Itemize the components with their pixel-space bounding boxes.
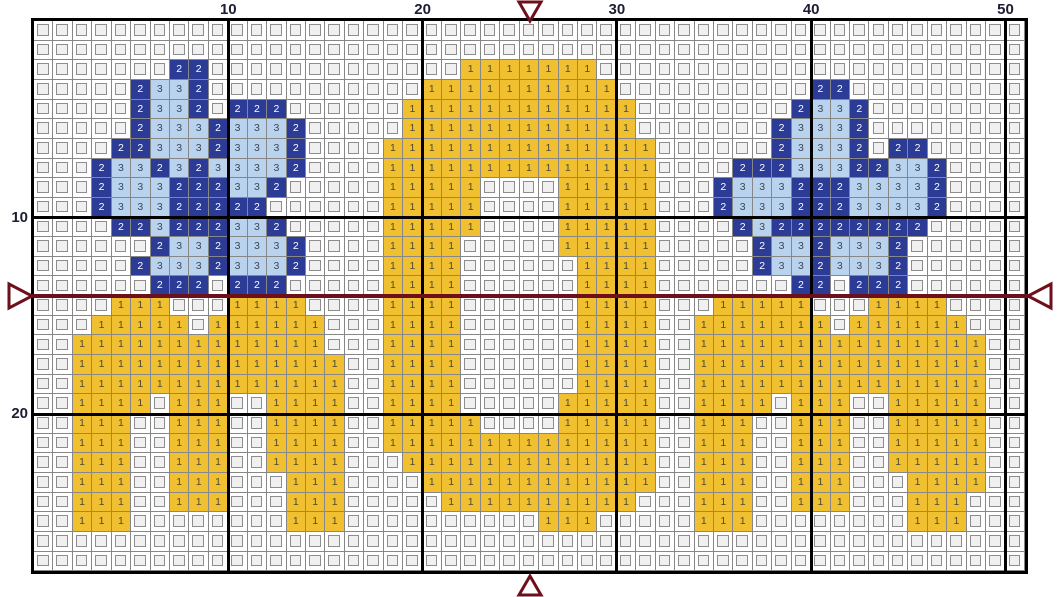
- grid-cell[interactable]: 1: [306, 453, 325, 473]
- grid-cell[interactable]: [986, 335, 1005, 355]
- grid-cell[interactable]: 1: [442, 80, 461, 100]
- grid-cell[interactable]: [403, 532, 422, 552]
- grid-cell[interactable]: [53, 198, 72, 218]
- grid-cell[interactable]: [500, 335, 519, 355]
- grid-cell[interactable]: 1: [481, 434, 500, 454]
- grid-cell[interactable]: [73, 60, 92, 80]
- grid-cell[interactable]: [34, 159, 53, 179]
- grid-cell[interactable]: [73, 532, 92, 552]
- grid-cell[interactable]: [539, 414, 558, 434]
- grid-cell[interactable]: [889, 512, 908, 532]
- grid-cell[interactable]: [986, 60, 1005, 80]
- grid-cell[interactable]: 1: [967, 453, 986, 473]
- grid-cell[interactable]: 1: [889, 375, 908, 395]
- grid-cell[interactable]: 3: [831, 237, 850, 257]
- grid-cell[interactable]: [928, 139, 947, 159]
- grid-cell[interactable]: [811, 552, 830, 572]
- grid-cell[interactable]: 1: [559, 80, 578, 100]
- grid-cell[interactable]: 3: [131, 159, 150, 179]
- grid-cell[interactable]: 1: [189, 493, 208, 513]
- grid-cell[interactable]: 2: [869, 218, 888, 238]
- grid-cell[interactable]: 2: [287, 139, 306, 159]
- grid-cell[interactable]: [850, 532, 869, 552]
- grid-cell[interactable]: 3: [151, 80, 170, 100]
- grid-cell[interactable]: [364, 198, 383, 218]
- grid-cell[interactable]: [928, 552, 947, 572]
- grid-cell[interactable]: 1: [112, 355, 131, 375]
- grid-cell[interactable]: [189, 512, 208, 532]
- grid-cell[interactable]: [539, 198, 558, 218]
- grid-cell[interactable]: 1: [695, 394, 714, 414]
- grid-cell[interactable]: [131, 532, 150, 552]
- grid-cell[interactable]: 2: [131, 100, 150, 120]
- grid-cell[interactable]: 1: [423, 316, 442, 336]
- grid-cell[interactable]: [539, 532, 558, 552]
- grid-cell[interactable]: [364, 41, 383, 61]
- grid-cell[interactable]: 1: [73, 335, 92, 355]
- grid-cell[interactable]: 2: [733, 218, 752, 238]
- grid-cell[interactable]: 3: [228, 159, 247, 179]
- grid-cell[interactable]: [267, 80, 286, 100]
- grid-cell[interactable]: [92, 218, 111, 238]
- grid-cell[interactable]: [306, 552, 325, 572]
- grid-cell[interactable]: 3: [228, 139, 247, 159]
- grid-cell[interactable]: [1006, 335, 1025, 355]
- grid-cell[interactable]: 2: [209, 218, 228, 238]
- grid-cell[interactable]: [772, 552, 791, 572]
- grid-cell[interactable]: [306, 21, 325, 41]
- grid-cell[interactable]: 2: [131, 139, 150, 159]
- grid-cell[interactable]: 1: [539, 119, 558, 139]
- grid-cell[interactable]: 1: [772, 375, 791, 395]
- grid-cell[interactable]: 3: [170, 119, 189, 139]
- grid-cell[interactable]: 1: [481, 119, 500, 139]
- grid-cell[interactable]: 1: [461, 414, 480, 434]
- grid-cell[interactable]: 2: [792, 100, 811, 120]
- grid-cell[interactable]: [1006, 532, 1025, 552]
- grid-cell[interactable]: 1: [520, 100, 539, 120]
- grid-cell[interactable]: 1: [423, 434, 442, 454]
- grid-cell[interactable]: 1: [384, 257, 403, 277]
- grid-cell[interactable]: [34, 218, 53, 238]
- grid-cell[interactable]: [500, 198, 519, 218]
- grid-cell[interactable]: [306, 139, 325, 159]
- grid-cell[interactable]: [442, 21, 461, 41]
- grid-cell[interactable]: 2: [908, 139, 927, 159]
- grid-cell[interactable]: 3: [831, 139, 850, 159]
- grid-cell[interactable]: [364, 532, 383, 552]
- grid-cell[interactable]: [228, 512, 247, 532]
- grid-cell[interactable]: [520, 316, 539, 336]
- grid-cell[interactable]: 1: [131, 316, 150, 336]
- grid-cell[interactable]: 1: [384, 375, 403, 395]
- grid-cell[interactable]: [384, 453, 403, 473]
- grid-cell[interactable]: 1: [928, 434, 947, 454]
- grid-cell[interactable]: 3: [151, 178, 170, 198]
- grid-cell[interactable]: [947, 80, 966, 100]
- grid-cell[interactable]: [384, 512, 403, 532]
- grid-cell[interactable]: [53, 375, 72, 395]
- grid-cell[interactable]: [151, 21, 170, 41]
- grid-cell[interactable]: 1: [442, 493, 461, 513]
- grid-cell[interactable]: 1: [772, 316, 791, 336]
- grid-cell[interactable]: 1: [442, 473, 461, 493]
- grid-cell[interactable]: 1: [733, 296, 752, 316]
- grid-cell[interactable]: [34, 296, 53, 316]
- grid-cell[interactable]: 1: [442, 119, 461, 139]
- grid-cell[interactable]: [889, 552, 908, 572]
- grid-cell[interactable]: [209, 41, 228, 61]
- grid-cell[interactable]: 1: [112, 394, 131, 414]
- grid-cell[interactable]: 1: [811, 414, 830, 434]
- grid-cell[interactable]: [248, 532, 267, 552]
- grid-cell[interactable]: [92, 276, 111, 296]
- grid-cell[interactable]: 1: [967, 355, 986, 375]
- grid-cell[interactable]: 1: [403, 414, 422, 434]
- grid-cell[interactable]: 1: [248, 335, 267, 355]
- grid-cell[interactable]: 2: [850, 218, 869, 238]
- grid-cell[interactable]: 1: [714, 493, 733, 513]
- grid-cell[interactable]: 1: [811, 453, 830, 473]
- grid-cell[interactable]: 1: [131, 394, 150, 414]
- grid-cell[interactable]: 2: [209, 139, 228, 159]
- grid-cell[interactable]: [1006, 178, 1025, 198]
- grid-cell[interactable]: 1: [908, 335, 927, 355]
- grid-cell[interactable]: 1: [92, 493, 111, 513]
- grid-cell[interactable]: 1: [578, 414, 597, 434]
- grid-cell[interactable]: 1: [306, 493, 325, 513]
- grid-cell[interactable]: [461, 355, 480, 375]
- grid-cell[interactable]: [656, 414, 675, 434]
- grid-cell[interactable]: 1: [403, 394, 422, 414]
- grid-cell[interactable]: [442, 60, 461, 80]
- grid-cell[interactable]: [928, 237, 947, 257]
- grid-cell[interactable]: [831, 512, 850, 532]
- grid-cell[interactable]: [539, 375, 558, 395]
- grid-cell[interactable]: [53, 512, 72, 532]
- grid-cell[interactable]: 1: [189, 414, 208, 434]
- grid-cell[interactable]: [675, 178, 694, 198]
- grid-cell[interactable]: 1: [131, 296, 150, 316]
- grid-cell[interactable]: [811, 512, 830, 532]
- grid-cell[interactable]: 1: [928, 414, 947, 434]
- grid-cell[interactable]: 1: [539, 100, 558, 120]
- grid-cell[interactable]: [947, 276, 966, 296]
- grid-cell[interactable]: [675, 218, 694, 238]
- grid-cell[interactable]: [364, 316, 383, 336]
- grid-cell[interactable]: [772, 394, 791, 414]
- grid-cell[interactable]: 1: [831, 375, 850, 395]
- grid-cell[interactable]: 1: [442, 296, 461, 316]
- grid-cell[interactable]: [267, 493, 286, 513]
- grid-cell[interactable]: 3: [869, 237, 888, 257]
- grid-cell[interactable]: 1: [947, 355, 966, 375]
- grid-cell[interactable]: [675, 493, 694, 513]
- grid-cell[interactable]: [636, 21, 655, 41]
- grid-cell[interactable]: [559, 552, 578, 572]
- grid-cell[interactable]: [34, 532, 53, 552]
- grid-cell[interactable]: [850, 60, 869, 80]
- grid-cell[interactable]: 1: [461, 60, 480, 80]
- grid-cell[interactable]: [656, 493, 675, 513]
- grid-cell[interactable]: [733, 276, 752, 296]
- grid-cell[interactable]: [539, 178, 558, 198]
- grid-cell[interactable]: 3: [248, 119, 267, 139]
- grid-cell[interactable]: 2: [869, 276, 888, 296]
- grid-cell[interactable]: 1: [539, 80, 558, 100]
- grid-cell[interactable]: [695, 119, 714, 139]
- grid-cell[interactable]: 3: [151, 100, 170, 120]
- grid-cell[interactable]: [675, 159, 694, 179]
- grid-cell[interactable]: 2: [772, 159, 791, 179]
- grid-cell[interactable]: 1: [384, 296, 403, 316]
- grid-cell[interactable]: [345, 100, 364, 120]
- grid-cell[interactable]: 1: [695, 473, 714, 493]
- grid-cell[interactable]: [656, 41, 675, 61]
- grid-cell[interactable]: 1: [306, 414, 325, 434]
- grid-cell[interactable]: [928, 41, 947, 61]
- grid-cell[interactable]: [753, 473, 772, 493]
- grid-cell[interactable]: [831, 21, 850, 41]
- grid-cell[interactable]: [753, 532, 772, 552]
- grid-cell[interactable]: 1: [423, 375, 442, 395]
- grid-cell[interactable]: 1: [850, 355, 869, 375]
- grid-cell[interactable]: 2: [928, 198, 947, 218]
- grid-cell[interactable]: [112, 119, 131, 139]
- grid-cell[interactable]: [423, 512, 442, 532]
- grid-cell[interactable]: [928, 80, 947, 100]
- grid-cell[interactable]: [228, 21, 247, 41]
- grid-cell[interactable]: 1: [423, 335, 442, 355]
- grid-cell[interactable]: [908, 21, 927, 41]
- grid-cell[interactable]: 1: [617, 198, 636, 218]
- grid-cell[interactable]: [228, 473, 247, 493]
- grid-cell[interactable]: [617, 21, 636, 41]
- grid-cell[interactable]: [481, 218, 500, 238]
- grid-cell[interactable]: [656, 159, 675, 179]
- grid-cell[interactable]: 1: [578, 60, 597, 80]
- grid-cell[interactable]: [53, 218, 72, 238]
- grid-cell[interactable]: 1: [889, 434, 908, 454]
- grid-cell[interactable]: 1: [248, 375, 267, 395]
- grid-cell[interactable]: 1: [461, 453, 480, 473]
- grid-cell[interactable]: 1: [617, 159, 636, 179]
- grid-cell[interactable]: 1: [947, 316, 966, 336]
- grid-cell[interactable]: [675, 316, 694, 336]
- grid-cell[interactable]: 2: [287, 119, 306, 139]
- grid-cell[interactable]: 1: [597, 80, 616, 100]
- grid-cell[interactable]: [248, 473, 267, 493]
- grid-cell[interactable]: [772, 60, 791, 80]
- grid-cell[interactable]: [695, 218, 714, 238]
- grid-cell[interactable]: 1: [617, 473, 636, 493]
- grid-cell[interactable]: 1: [753, 296, 772, 316]
- grid-cell[interactable]: [53, 355, 72, 375]
- grid-cell[interactable]: [306, 218, 325, 238]
- grid-cell[interactable]: 1: [500, 453, 519, 473]
- grid-cell[interactable]: 1: [597, 119, 616, 139]
- grid-cell[interactable]: [792, 532, 811, 552]
- grid-cell[interactable]: 1: [151, 355, 170, 375]
- grid-cell[interactable]: 1: [403, 237, 422, 257]
- grid-cell[interactable]: [733, 60, 752, 80]
- grid-cell[interactable]: 1: [889, 335, 908, 355]
- grid-cell[interactable]: [209, 80, 228, 100]
- grid-cell[interactable]: 2: [189, 218, 208, 238]
- grid-cell[interactable]: 1: [403, 335, 422, 355]
- grid-cell[interactable]: [364, 375, 383, 395]
- grid-cell[interactable]: [889, 493, 908, 513]
- grid-cell[interactable]: [53, 276, 72, 296]
- grid-cell[interactable]: 1: [384, 316, 403, 336]
- grid-cell[interactable]: [559, 375, 578, 395]
- grid-cell[interactable]: 3: [228, 178, 247, 198]
- grid-cell[interactable]: 2: [170, 60, 189, 80]
- grid-cell[interactable]: [908, 257, 927, 277]
- grid-cell[interactable]: [92, 100, 111, 120]
- grid-cell[interactable]: 1: [92, 453, 111, 473]
- grid-cell[interactable]: 1: [248, 296, 267, 316]
- grid-cell[interactable]: 1: [539, 473, 558, 493]
- grid-cell[interactable]: 1: [947, 512, 966, 532]
- grid-cell[interactable]: 1: [617, 257, 636, 277]
- grid-cell[interactable]: [831, 276, 850, 296]
- grid-cell[interactable]: [986, 434, 1005, 454]
- grid-cell[interactable]: 1: [695, 375, 714, 395]
- grid-cell[interactable]: 3: [170, 237, 189, 257]
- grid-cell[interactable]: [967, 512, 986, 532]
- grid-cell[interactable]: [656, 60, 675, 80]
- grid-cell[interactable]: [481, 296, 500, 316]
- grid-cell[interactable]: 1: [384, 237, 403, 257]
- grid-cell[interactable]: 1: [73, 355, 92, 375]
- grid-cell[interactable]: [403, 60, 422, 80]
- grid-cell[interactable]: [112, 532, 131, 552]
- grid-cell[interactable]: [908, 60, 927, 80]
- grid-cell[interactable]: [675, 21, 694, 41]
- grid-cell[interactable]: [675, 414, 694, 434]
- grid-cell[interactable]: 1: [714, 375, 733, 395]
- grid-cell[interactable]: [967, 218, 986, 238]
- grid-cell[interactable]: 3: [831, 257, 850, 277]
- grid-cell[interactable]: [714, 139, 733, 159]
- grid-cell[interactable]: 1: [442, 276, 461, 296]
- grid-cell[interactable]: [811, 41, 830, 61]
- grid-cell[interactable]: 2: [811, 237, 830, 257]
- grid-cell[interactable]: [675, 473, 694, 493]
- grid-cell[interactable]: [986, 394, 1005, 414]
- grid-cell[interactable]: 2: [170, 218, 189, 238]
- grid-cell[interactable]: 1: [461, 119, 480, 139]
- grid-cell[interactable]: 2: [209, 257, 228, 277]
- grid-cell[interactable]: [520, 237, 539, 257]
- grid-cell[interactable]: [539, 296, 558, 316]
- grid-cell[interactable]: [34, 139, 53, 159]
- grid-cell[interactable]: 2: [170, 198, 189, 218]
- grid-cell[interactable]: [53, 414, 72, 434]
- grid-cell[interactable]: 1: [325, 473, 344, 493]
- grid-cell[interactable]: 1: [112, 375, 131, 395]
- grid-cell[interactable]: 2: [131, 119, 150, 139]
- grid-cell[interactable]: [384, 552, 403, 572]
- grid-cell[interactable]: [1006, 394, 1025, 414]
- grid-cell[interactable]: 1: [442, 335, 461, 355]
- grid-cell[interactable]: [811, 21, 830, 41]
- grid-cell[interactable]: [442, 41, 461, 61]
- grid-cell[interactable]: 1: [442, 100, 461, 120]
- grid-cell[interactable]: 1: [714, 414, 733, 434]
- grid-cell[interactable]: 1: [442, 453, 461, 473]
- grid-cell[interactable]: 1: [889, 296, 908, 316]
- grid-cell[interactable]: 1: [578, 355, 597, 375]
- grid-cell[interactable]: 1: [908, 473, 927, 493]
- grid-cell[interactable]: 2: [92, 159, 111, 179]
- grid-cell[interactable]: 1: [423, 178, 442, 198]
- grid-cell[interactable]: [947, 21, 966, 41]
- grid-cell[interactable]: 2: [850, 139, 869, 159]
- grid-cell[interactable]: 1: [597, 237, 616, 257]
- grid-cell[interactable]: [772, 414, 791, 434]
- grid-cell[interactable]: [53, 453, 72, 473]
- grid-cell[interactable]: [520, 355, 539, 375]
- grid-cell[interactable]: [461, 512, 480, 532]
- grid-cell[interactable]: 1: [189, 355, 208, 375]
- grid-cell[interactable]: [53, 257, 72, 277]
- grid-cell[interactable]: [345, 394, 364, 414]
- grid-cell[interactable]: [656, 276, 675, 296]
- grid-cell[interactable]: 1: [928, 473, 947, 493]
- grid-cell[interactable]: 1: [287, 512, 306, 532]
- grid-cell[interactable]: 1: [869, 375, 888, 395]
- grid-cell[interactable]: 1: [306, 473, 325, 493]
- grid-cell[interactable]: 1: [869, 296, 888, 316]
- grid-cell[interactable]: [325, 159, 344, 179]
- grid-cell[interactable]: 1: [578, 394, 597, 414]
- grid-cell[interactable]: 1: [92, 394, 111, 414]
- grid-cell[interactable]: [461, 41, 480, 61]
- grid-cell[interactable]: 1: [597, 394, 616, 414]
- grid-cell[interactable]: 3: [850, 178, 869, 198]
- grid-cell[interactable]: [325, 335, 344, 355]
- grid-cell[interactable]: [733, 80, 752, 100]
- grid-cell[interactable]: [500, 257, 519, 277]
- grid-cell[interactable]: 1: [325, 414, 344, 434]
- grid-cell[interactable]: [772, 80, 791, 100]
- grid-cell[interactable]: [559, 41, 578, 61]
- grid-cell[interactable]: [908, 276, 927, 296]
- grid-cell[interactable]: [209, 276, 228, 296]
- grid-cell[interactable]: 1: [442, 198, 461, 218]
- grid-cell[interactable]: [345, 414, 364, 434]
- grid-cell[interactable]: 3: [267, 257, 286, 277]
- grid-cell[interactable]: 1: [617, 218, 636, 238]
- grid-cell[interactable]: 1: [967, 335, 986, 355]
- grid-cell[interactable]: [753, 414, 772, 434]
- grid-cell[interactable]: 1: [578, 473, 597, 493]
- grid-cell[interactable]: [1006, 159, 1025, 179]
- grid-cell[interactable]: [364, 434, 383, 454]
- grid-cell[interactable]: 1: [500, 60, 519, 80]
- grid-cell[interactable]: 1: [831, 493, 850, 513]
- grid-cell[interactable]: 2: [733, 159, 752, 179]
- grid-cell[interactable]: [53, 316, 72, 336]
- grid-cell[interactable]: [151, 434, 170, 454]
- grid-cell[interactable]: [869, 394, 888, 414]
- grid-cell[interactable]: [442, 532, 461, 552]
- grid-cell[interactable]: 1: [597, 493, 616, 513]
- grid-cell[interactable]: 3: [248, 139, 267, 159]
- grid-cell[interactable]: 1: [695, 316, 714, 336]
